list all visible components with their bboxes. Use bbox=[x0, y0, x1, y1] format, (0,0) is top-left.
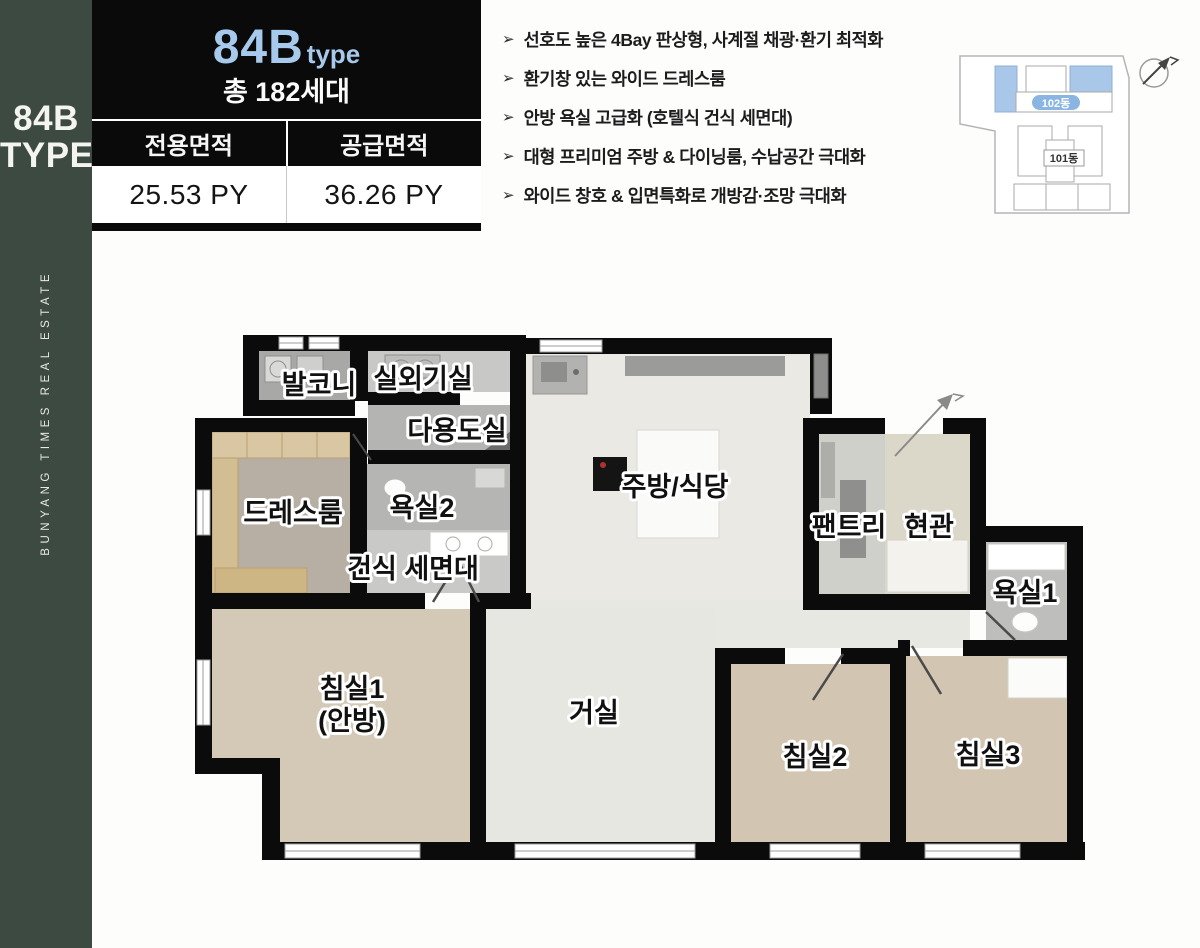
unit-block bbox=[1014, 184, 1110, 210]
pantry-label: 팬트리 bbox=[812, 512, 887, 542]
wardrobe-cabinet bbox=[215, 568, 307, 593]
feature-text: 와이드 창호 & 입면특화로 개방감·조망 극대화 bbox=[524, 185, 847, 207]
window bbox=[197, 490, 210, 535]
area-table-values: 25.53 PY 36.26 PY bbox=[92, 166, 481, 223]
exclusive-area-header: 전용면적 bbox=[92, 121, 286, 166]
exclusive-area-value: 25.53 PY bbox=[92, 166, 286, 223]
feature-item: ➢ 대형 프리미엄 주방 & 다이닝룸, 수납공간 극대화 bbox=[502, 146, 942, 169]
entrance-label: 현관 bbox=[904, 512, 954, 542]
unit-type-title: 84B type bbox=[92, 20, 481, 70]
feature-text: 선호도 높은 4Bay 판상형, 사계절 채광·환기 최적화 bbox=[524, 29, 884, 51]
dry-vanity-counter bbox=[430, 532, 508, 556]
site-plan-map: 102동 101동 bbox=[948, 38, 1198, 233]
unit-type-suffix: type bbox=[307, 39, 360, 70]
wardrobe-cabinet bbox=[212, 432, 350, 458]
arrow-bullet-icon: ➢ bbox=[502, 68, 515, 90]
unit-type-main: 84B bbox=[213, 20, 304, 75]
window bbox=[925, 844, 1020, 858]
bath2-label: 욕실2 bbox=[390, 493, 455, 523]
sink-basin bbox=[541, 362, 567, 382]
balcony-label: 발코니 bbox=[282, 370, 357, 400]
kitchen-dining-label: 주방/식당 bbox=[622, 472, 729, 502]
arrow-bullet-icon: ➢ bbox=[502, 146, 515, 168]
bath2-sink bbox=[475, 468, 505, 488]
window bbox=[540, 340, 602, 352]
feature-item: ➢ 안방 욕실 고급화 (호텔식 건식 세면대) bbox=[502, 107, 942, 130]
feature-text: 안방 욕실 고급화 (호텔식 건식 세면대) bbox=[524, 107, 793, 129]
window bbox=[285, 844, 420, 858]
window bbox=[814, 354, 828, 398]
bedroom1-label: 침실1 bbox=[320, 674, 385, 704]
bedroom1-sublabel: (안방) bbox=[318, 706, 386, 736]
kitchen-counter bbox=[625, 356, 785, 376]
feature-list: ➢ 선호도 높은 4Bay 판상형, 사계절 채광·환기 최적화 ➢ 환기창 있… bbox=[502, 29, 942, 224]
building-101-label: 101동 bbox=[1050, 152, 1078, 165]
sidebar-type-line2: TYPE bbox=[0, 137, 92, 174]
pantry-shelf bbox=[821, 442, 835, 498]
window bbox=[515, 844, 695, 858]
utility-label: 다용도실 bbox=[407, 416, 506, 446]
floor-plan: 발코니 실외기실 다용도실 드레스룸 욕실2 건식 세면대 주방/식당 팬트리 … bbox=[185, 330, 1095, 880]
bedroom3-label: 침실3 bbox=[956, 740, 1021, 770]
bath1-vanity bbox=[988, 544, 1065, 570]
building-102-label: 102동 bbox=[1042, 97, 1070, 110]
window bbox=[309, 337, 339, 349]
arrow-bullet-icon: ➢ bbox=[502, 29, 515, 51]
feature-text: 환기창 있는 와이드 드레스룸 bbox=[524, 68, 726, 90]
toilet bbox=[1012, 612, 1038, 632]
sidebar-watermark-text: BUNYANG TIMES REAL ESTATE bbox=[40, 270, 52, 556]
highlighted-unit-left bbox=[995, 66, 1017, 112]
supply-area-value: 36.26 PY bbox=[286, 166, 481, 223]
feature-item: ➢ 와이드 창호 & 입면특화로 개방감·조망 극대화 bbox=[502, 185, 942, 208]
unit-block bbox=[1026, 66, 1066, 92]
unit-info-card: 84B type 총 182세대 전용면적 공급면적 25.53 PY 36.2… bbox=[92, 0, 481, 231]
faucet bbox=[573, 369, 579, 375]
feature-item: ➢ 선호도 높은 4Bay 판상형, 사계절 채광·환기 최적화 bbox=[502, 29, 942, 52]
living-label: 거실 bbox=[569, 698, 619, 728]
outdoor-unit-label: 실외기실 bbox=[373, 364, 472, 394]
dressroom-label: 드레스룸 bbox=[243, 498, 342, 528]
sidebar-type-title: 84B TYPE bbox=[0, 100, 92, 174]
building-102: 102동 bbox=[995, 66, 1112, 112]
supply-area-header: 공급면적 bbox=[286, 121, 482, 166]
window bbox=[197, 660, 210, 725]
dry-vanity-label: 건식 세면대 bbox=[347, 554, 479, 584]
closet bbox=[1008, 658, 1067, 698]
households-count: 총 182세대 bbox=[92, 70, 481, 103]
arrow-bullet-icon: ➢ bbox=[502, 185, 515, 207]
compass-icon bbox=[1140, 57, 1178, 87]
feature-item: ➢ 환기창 있는 와이드 드레스룸 bbox=[502, 68, 942, 91]
arrow-bullet-icon: ➢ bbox=[502, 107, 515, 129]
area-table-header: 전용면적 공급면적 bbox=[92, 121, 481, 166]
sidebar-type-line1: 84B bbox=[0, 100, 92, 137]
window bbox=[279, 337, 303, 349]
bedroom2-label: 침실2 bbox=[783, 742, 848, 772]
feature-text: 대형 프리미엄 주방 & 다이닝룸, 수납공간 극대화 bbox=[524, 146, 866, 168]
highlighted-unit-right bbox=[1070, 66, 1112, 92]
window bbox=[770, 844, 860, 858]
bath1-label: 욕실1 bbox=[993, 578, 1058, 608]
sidebar-watermark-wrap: BUNYANG TIMES REAL ESTATE bbox=[0, 258, 92, 568]
sidebar: 84B TYPE BUNYANG TIMES REAL ESTATE bbox=[0, 0, 92, 948]
shoe-cabinet bbox=[887, 540, 968, 592]
